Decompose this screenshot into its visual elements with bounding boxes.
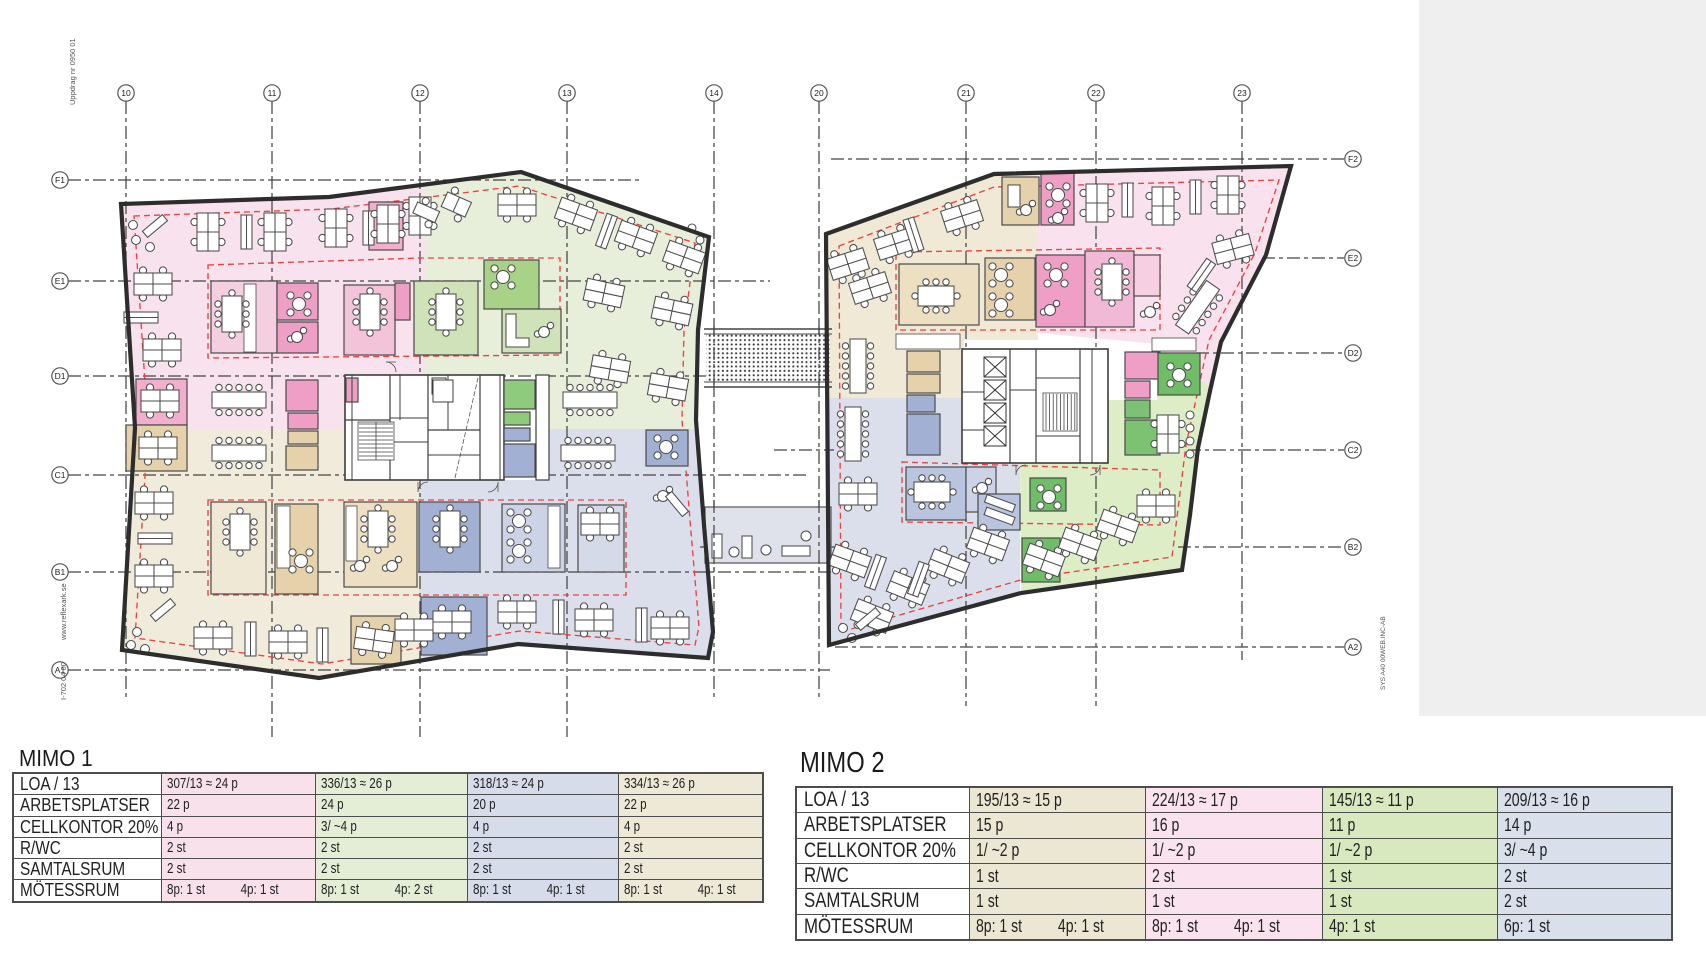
- svg-text:13: 13: [562, 88, 572, 98]
- svg-text:A2: A2: [1348, 642, 1359, 652]
- svg-text:F2: F2: [1348, 154, 1358, 164]
- svg-text:B1: B1: [55, 567, 66, 577]
- svg-text:14: 14: [709, 88, 719, 98]
- svg-text:11: 11: [268, 88, 277, 98]
- svg-text:F1: F1: [55, 175, 65, 185]
- svg-text:SYS A40 00WEB.INC-AB: SYS A40 00WEB.INC-AB: [1380, 616, 1387, 690]
- svg-text:C2: C2: [1348, 445, 1359, 455]
- svg-text:12: 12: [415, 88, 425, 98]
- svg-text:www.reflexark.se: www.reflexark.se: [59, 583, 68, 641]
- svg-text:Uppdrag nr 0950 01: Uppdrag nr 0950 01: [68, 38, 77, 105]
- svg-text:I-702 04 00: I-702 04 00: [59, 662, 68, 700]
- svg-text:10: 10: [121, 88, 131, 98]
- svg-text:E2: E2: [1348, 253, 1359, 263]
- svg-text:22: 22: [1091, 88, 1101, 98]
- svg-text:E1: E1: [55, 276, 66, 286]
- svg-text:B2: B2: [1348, 542, 1359, 552]
- svg-text:21: 21: [961, 88, 971, 98]
- svg-text:C1: C1: [55, 470, 66, 480]
- svg-text:D2: D2: [1348, 348, 1359, 358]
- svg-text:D1: D1: [55, 371, 66, 381]
- svg-text:23: 23: [1237, 88, 1247, 98]
- svg-text:20: 20: [814, 88, 824, 98]
